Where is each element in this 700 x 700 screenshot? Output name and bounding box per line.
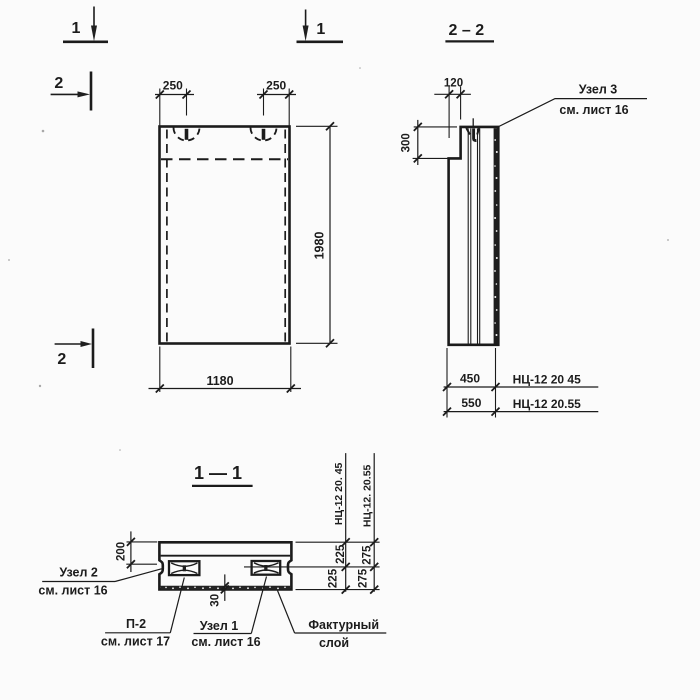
svg-text:450: 450 [460,372,480,386]
svg-text:1980: 1980 [313,232,327,260]
svg-text:2: 2 [54,75,63,92]
svg-text:200: 200 [116,542,128,561]
svg-text:П-2: П-2 [126,617,146,631]
svg-text:НЦ-12. 20.55: НЦ-12. 20.55 [361,464,373,527]
svg-text:см. лист 16: см. лист 16 [38,583,107,597]
svg-text:Узел 2: Узел 2 [59,566,98,580]
svg-text:см. лист 16: см. лист 16 [559,103,628,117]
svg-text:Фактурный: Фактурный [308,618,379,632]
svg-text:1: 1 [316,21,325,38]
svg-text:1180: 1180 [206,374,233,388]
svg-text:300: 300 [401,133,413,152]
svg-text:НЦ-12 20. 45: НЦ-12 20. 45 [333,462,345,525]
svg-text:слой: слой [319,636,349,650]
svg-text:1 — 1: 1 — 1 [194,463,242,483]
svg-text:225: 225 [335,544,347,564]
svg-text:275: 275 [358,568,370,588]
svg-text:Узел 3: Узел 3 [579,83,618,97]
svg-text:1: 1 [72,20,81,37]
svg-text:30: 30 [210,594,222,607]
svg-text:275: 275 [362,545,374,565]
svg-text:550: 550 [461,396,481,410]
svg-text:см. лист 16: см. лист 16 [191,635,260,649]
svg-text:НЦ-12 20 45: НЦ-12 20 45 [513,373,581,387]
svg-text:120: 120 [444,78,463,90]
svg-text:2: 2 [57,351,66,368]
svg-text:250: 250 [163,79,183,93]
svg-text:НЦ-12 20.55: НЦ-12 20.55 [513,397,581,411]
svg-text:см. лист 17: см. лист 17 [101,635,170,649]
svg-text:225: 225 [328,568,340,588]
svg-text:2 – 2: 2 – 2 [449,22,485,39]
svg-text:Узел 1: Узел 1 [200,619,239,633]
svg-text:250: 250 [266,79,286,93]
